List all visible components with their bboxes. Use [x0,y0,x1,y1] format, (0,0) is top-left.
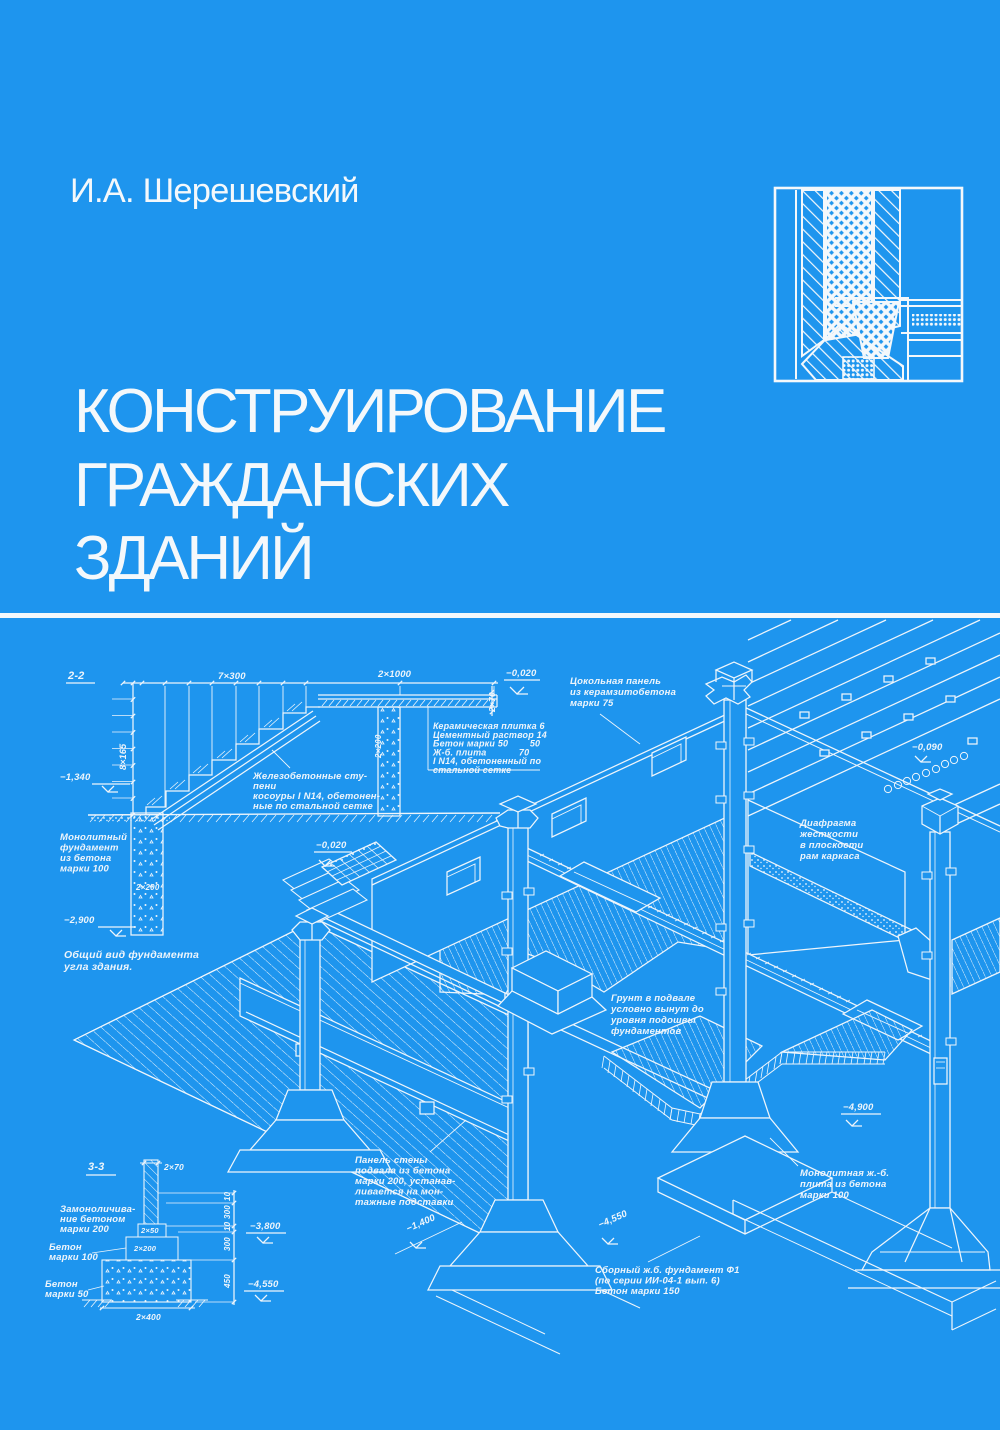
svg-text:−4,900: −4,900 [843,1102,874,1113]
svg-text:марки 200: марки 200 [60,1224,110,1235]
svg-text:марки 100: марки 100 [49,1252,99,1263]
svg-text:тажные подставки: тажные подставки [355,1197,454,1208]
svg-text:марки 100: марки 100 [60,864,110,875]
svg-text:условно вынут до: условно вынут до [610,1004,704,1015]
svg-text:−3,800: −3,800 [250,1221,281,1232]
svg-text:Общий вид фундамента: Общий вид фундамента [64,949,199,961]
svg-text:фундамент: фундамент [60,843,119,854]
svg-text:−1,340: −1,340 [60,772,91,783]
svg-text:2×200: 2×200 [133,1244,157,1253]
svg-text:Панель стены: Панель стены [355,1155,428,1166]
svg-text:−4,550: −4,550 [248,1279,279,1290]
svg-text:марки 100: марки 100 [800,1190,850,1201]
svg-text:Монолитная ж.-б.: Монолитная ж.-б. [800,1168,889,1179]
svg-text:ливается на мон-: ливается на мон- [354,1187,443,1198]
svg-text:Грунт в подвале: Грунт в подвале [611,993,696,1004]
svg-text:−2,900: −2,900 [64,915,95,926]
svg-text:марки 200, устанав-: марки 200, устанав- [355,1176,456,1187]
svg-text:2×1000: 2×1000 [377,669,412,680]
svg-text:жесткости: жесткости [799,829,858,840]
svg-text:2-2: 2-2 [67,670,85,682]
svg-text:Сборный ж.б. фундамент Ф1: Сборный ж.б. фундамент Ф1 [595,1265,740,1276]
svg-text:2×50: 2×50 [140,1226,159,1235]
svg-text:2×400: 2×400 [135,1312,161,1322]
svg-text:−0,020: −0,020 [506,668,537,679]
svg-text:Диафрагма: Диафрагма [799,818,856,829]
svg-text:марки 50: марки 50 [45,1289,89,1300]
svg-text:фундаментов: фундаментов [611,1026,682,1037]
svg-text:подвала из бетона: подвала из бетона [355,1166,450,1177]
svg-text:из бетона: из бетона [60,853,111,864]
svg-text:в плоскости: в плоскости [800,840,863,851]
svg-text:−0,090: −0,090 [912,742,943,753]
svg-text:Цокольная панель: Цокольная панель [570,676,661,687]
svg-text:плита из бетона: плита из бетона [800,1179,887,1190]
svg-text:Монолитный: Монолитный [60,832,127,843]
svg-text:−4,550: −4,550 [597,1208,630,1231]
svg-text:(по серии ИИ-04-1 вып. 6): (по серии ИИ-04-1 вып. 6) [595,1276,720,1287]
svg-text:450: 450 [223,1274,232,1289]
svg-text:марки 75: марки 75 [570,698,614,709]
svg-text:угла здания.: угла здания. [63,961,133,973]
svg-text:300: 300 [223,1205,232,1219]
svg-text:−1,400: −1,400 [405,1212,438,1235]
svg-text:Бетон марки 150: Бетон марки 150 [595,1286,680,1297]
svg-text:2×200: 2×200 [374,734,383,759]
svg-text:уровня подошвы: уровня подошвы [610,1015,696,1026]
svg-text:300: 300 [223,1237,232,1251]
svg-text:ные по стальной сетке: ные по стальной сетке [253,801,374,812]
svg-text:3-3: 3-3 [88,1161,105,1173]
svg-text:2×70: 2×70 [163,1162,184,1172]
svg-text:7×300: 7×300 [218,671,246,682]
svg-text:2×200: 2×200 [135,883,160,892]
svg-text:−0,020: −0,020 [316,840,347,851]
svg-text:8×165: 8×165 [118,743,128,770]
svg-text:рам каркаса: рам каркаса [799,851,860,862]
svg-text:из керамзитобетона: из керамзитобетона [570,687,676,698]
